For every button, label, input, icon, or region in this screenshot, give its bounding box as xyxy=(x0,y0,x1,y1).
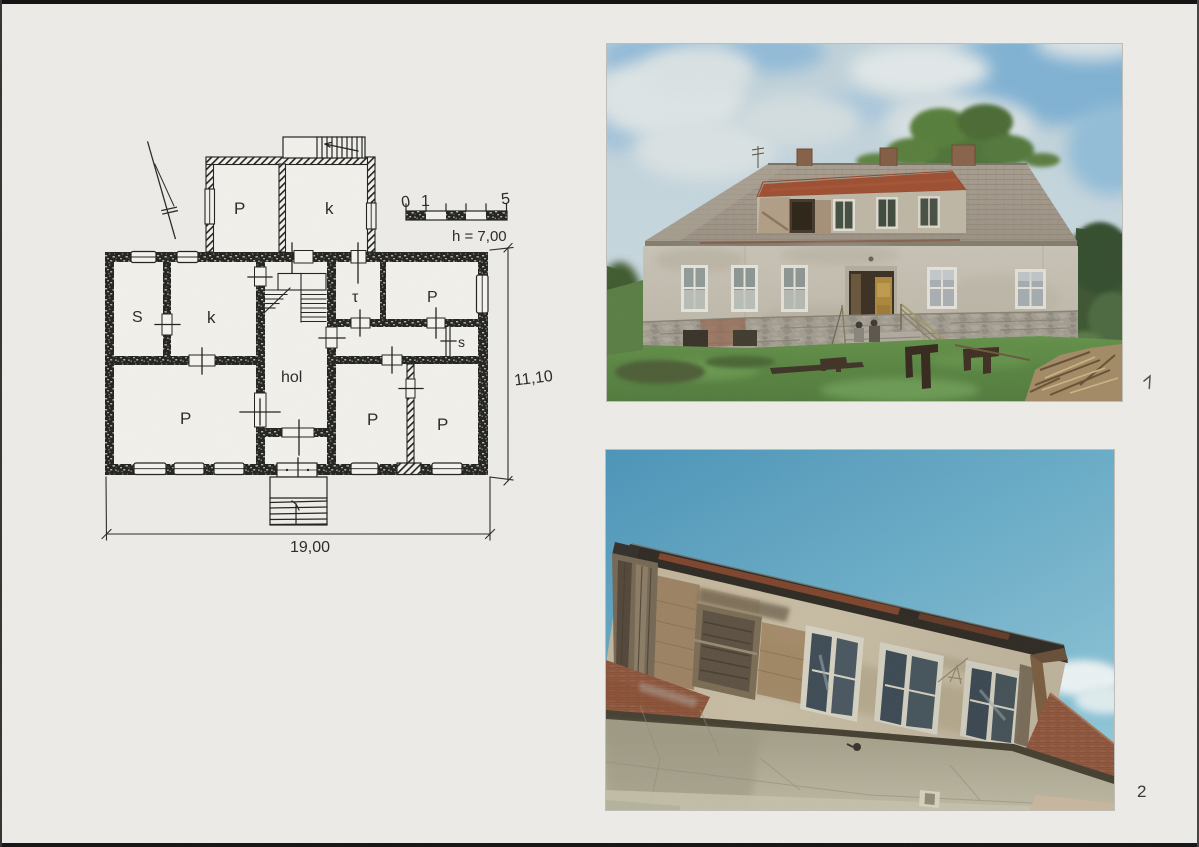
svg-text:P: P xyxy=(180,409,191,428)
svg-text:P: P xyxy=(234,199,245,218)
svg-text:5: 5 xyxy=(500,191,511,209)
svg-text:k: k xyxy=(207,308,216,327)
svg-text:P: P xyxy=(427,289,438,306)
svg-text:11,10: 11,10 xyxy=(513,368,554,390)
svg-text:19,00: 19,00 xyxy=(290,539,330,556)
svg-text:0: 0 xyxy=(400,193,411,211)
svg-text:h = 7,00: h = 7,00 xyxy=(452,228,507,245)
svg-text:τ: τ xyxy=(352,289,359,306)
svg-text:hol: hol xyxy=(281,369,302,386)
svg-text:s: s xyxy=(458,334,465,350)
svg-text:S: S xyxy=(132,309,143,326)
svg-text:P: P xyxy=(437,415,448,434)
svg-text:k: k xyxy=(325,199,334,218)
svg-text:P: P xyxy=(367,410,378,429)
svg-text:1: 1 xyxy=(421,193,430,210)
